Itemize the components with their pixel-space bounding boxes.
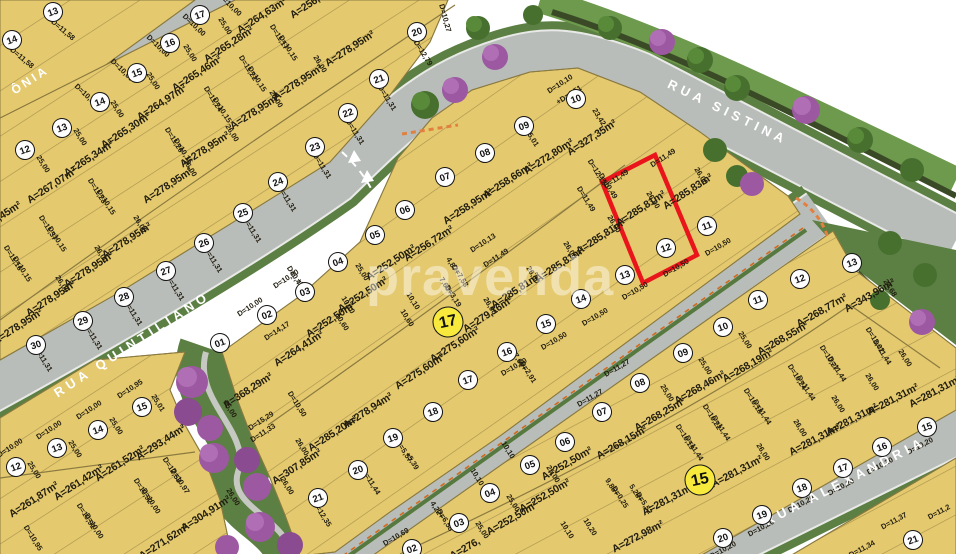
watermark: pravenda: [366, 246, 614, 308]
subdivision-plat-map: D=11,58D=11,58A=267,07m²A=265,34m²A=265,…: [0, 0, 956, 554]
